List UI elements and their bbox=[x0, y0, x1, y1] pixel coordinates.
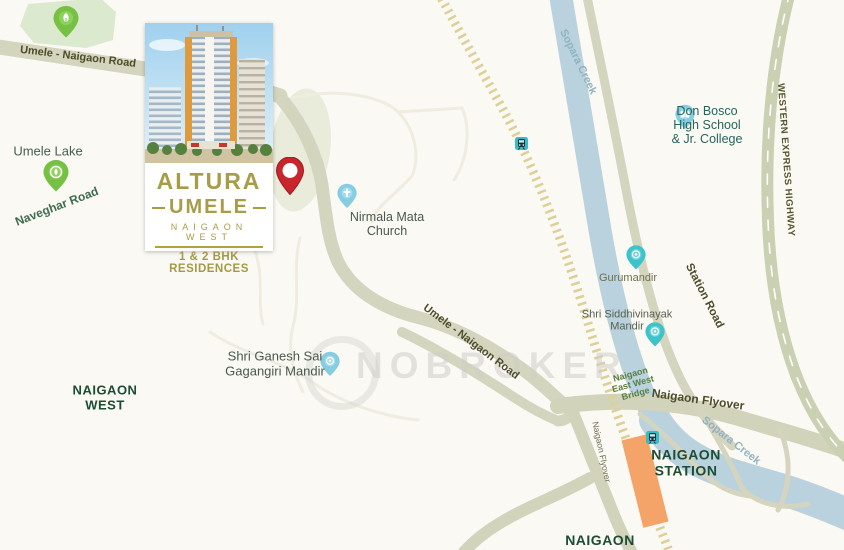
label-gurumandir: Gurumandir bbox=[599, 272, 657, 284]
project-name: UMELE bbox=[169, 196, 249, 219]
label-umele-lake: Umele Lake bbox=[13, 145, 82, 160]
gold-dash-right bbox=[253, 207, 266, 209]
project-card[interactable]: ALTURA UMELE NAIGAON WEST 1 & 2 BHK RESI… bbox=[145, 23, 273, 251]
map-canvas: NOBROKER bbox=[0, 0, 844, 550]
church-pin-icon bbox=[337, 182, 357, 210]
project-title: ALTURA bbox=[145, 168, 273, 195]
gurumandir-pin-icon bbox=[626, 244, 646, 271]
project-location: NAIGAON WEST bbox=[145, 222, 273, 242]
label-shri-siddhivinayak-mandir: Shri Siddhivinayak Mandir bbox=[582, 309, 673, 334]
building-photo bbox=[145, 23, 273, 163]
umele-lake-pin-icon bbox=[43, 160, 69, 192]
gold-dash-left bbox=[152, 207, 165, 209]
label-naigaon-station: NAIGAON STATION bbox=[651, 447, 721, 478]
train-icon bbox=[515, 137, 528, 151]
gold-rule bbox=[155, 246, 263, 248]
label-naigaon-west: NAIGAON WEST bbox=[73, 383, 138, 412]
project-tagline: 1 & 2 BHK RESIDENCES bbox=[145, 251, 273, 275]
park-pin-icon bbox=[53, 6, 79, 38]
project-name-row: UMELE bbox=[145, 196, 273, 219]
label-naigaon: NAIGAON bbox=[565, 533, 635, 549]
label-nirmala-mata-church: Nirmala Mata Church bbox=[350, 210, 424, 238]
label-shri-ganesh-sai: Shri Ganesh Sai Gagangiri Mandir bbox=[225, 349, 325, 378]
label-don-bosco: Don Bosco High School & Jr. College bbox=[672, 104, 743, 146]
train-icon-station bbox=[646, 431, 659, 445]
project-location-pin-icon[interactable] bbox=[276, 157, 304, 195]
